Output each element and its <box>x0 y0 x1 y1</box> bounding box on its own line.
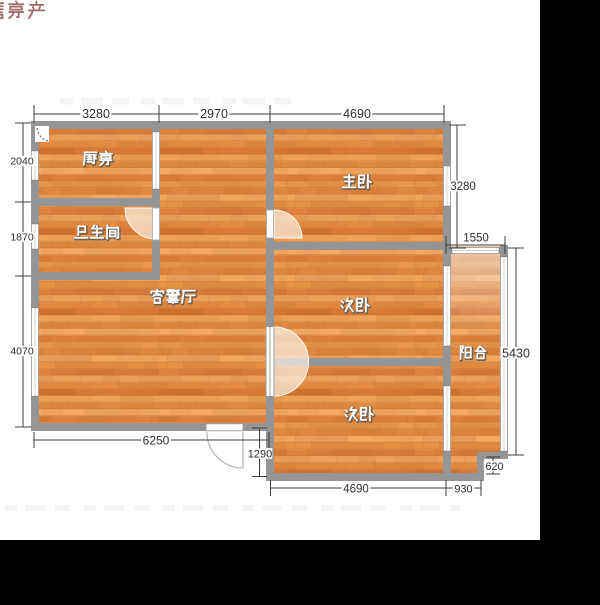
svg-text:4070: 4070 <box>10 346 34 358</box>
svg-text:2040: 2040 <box>10 156 34 168</box>
svg-text:6250: 6250 <box>143 433 170 447</box>
svg-text:3280: 3280 <box>450 181 476 193</box>
svg-text:4690: 4690 <box>343 107 371 121</box>
svg-text:3280: 3280 <box>82 107 110 121</box>
svg-text:5430: 5430 <box>502 346 530 360</box>
svg-text:1870: 1870 <box>10 232 34 244</box>
svg-text:620: 620 <box>485 461 503 473</box>
svg-text:930: 930 <box>454 483 472 495</box>
svg-text:1550: 1550 <box>463 233 489 245</box>
svg-text:2970: 2970 <box>200 107 228 121</box>
svg-text:1290: 1290 <box>248 448 273 460</box>
svg-text:4690: 4690 <box>343 484 369 496</box>
